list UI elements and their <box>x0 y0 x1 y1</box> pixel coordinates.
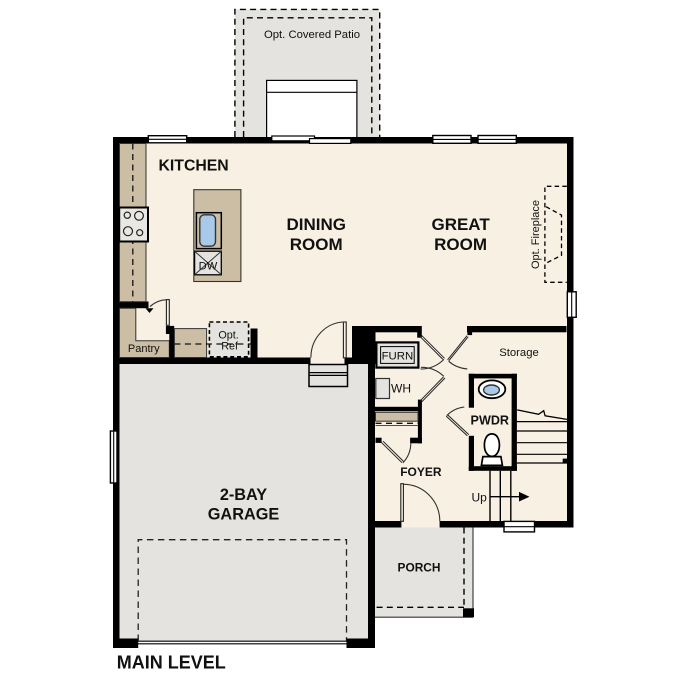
svg-text:WH: WH <box>391 381 411 395</box>
svg-text:DW: DW <box>199 260 218 272</box>
svg-text:DINING: DINING <box>286 215 346 234</box>
svg-text:Opt. Covered Patio: Opt. Covered Patio <box>264 29 360 41</box>
svg-text:KITCHEN: KITCHEN <box>159 158 229 175</box>
svg-text:Opt. Fireplace: Opt. Fireplace <box>530 200 542 269</box>
svg-text:FURN: FURN <box>382 350 414 362</box>
svg-text:GARAGE: GARAGE <box>208 505 280 523</box>
svg-text:FOYER: FOYER <box>400 465 442 479</box>
svg-text:Storage: Storage <box>499 347 539 359</box>
svg-text:2-BAY: 2-BAY <box>220 486 267 504</box>
svg-text:MAIN LEVEL: MAIN LEVEL <box>117 652 226 672</box>
svg-text:PWDR: PWDR <box>471 413 509 427</box>
svg-text:Ref: Ref <box>221 340 239 352</box>
svg-text:PORCH: PORCH <box>398 560 441 574</box>
svg-text:ROOM: ROOM <box>290 235 343 254</box>
svg-text:Up: Up <box>472 490 488 504</box>
svg-text:Pantry: Pantry <box>128 343 160 355</box>
svg-text:GREAT: GREAT <box>431 215 490 234</box>
svg-text:ROOM: ROOM <box>434 235 487 254</box>
